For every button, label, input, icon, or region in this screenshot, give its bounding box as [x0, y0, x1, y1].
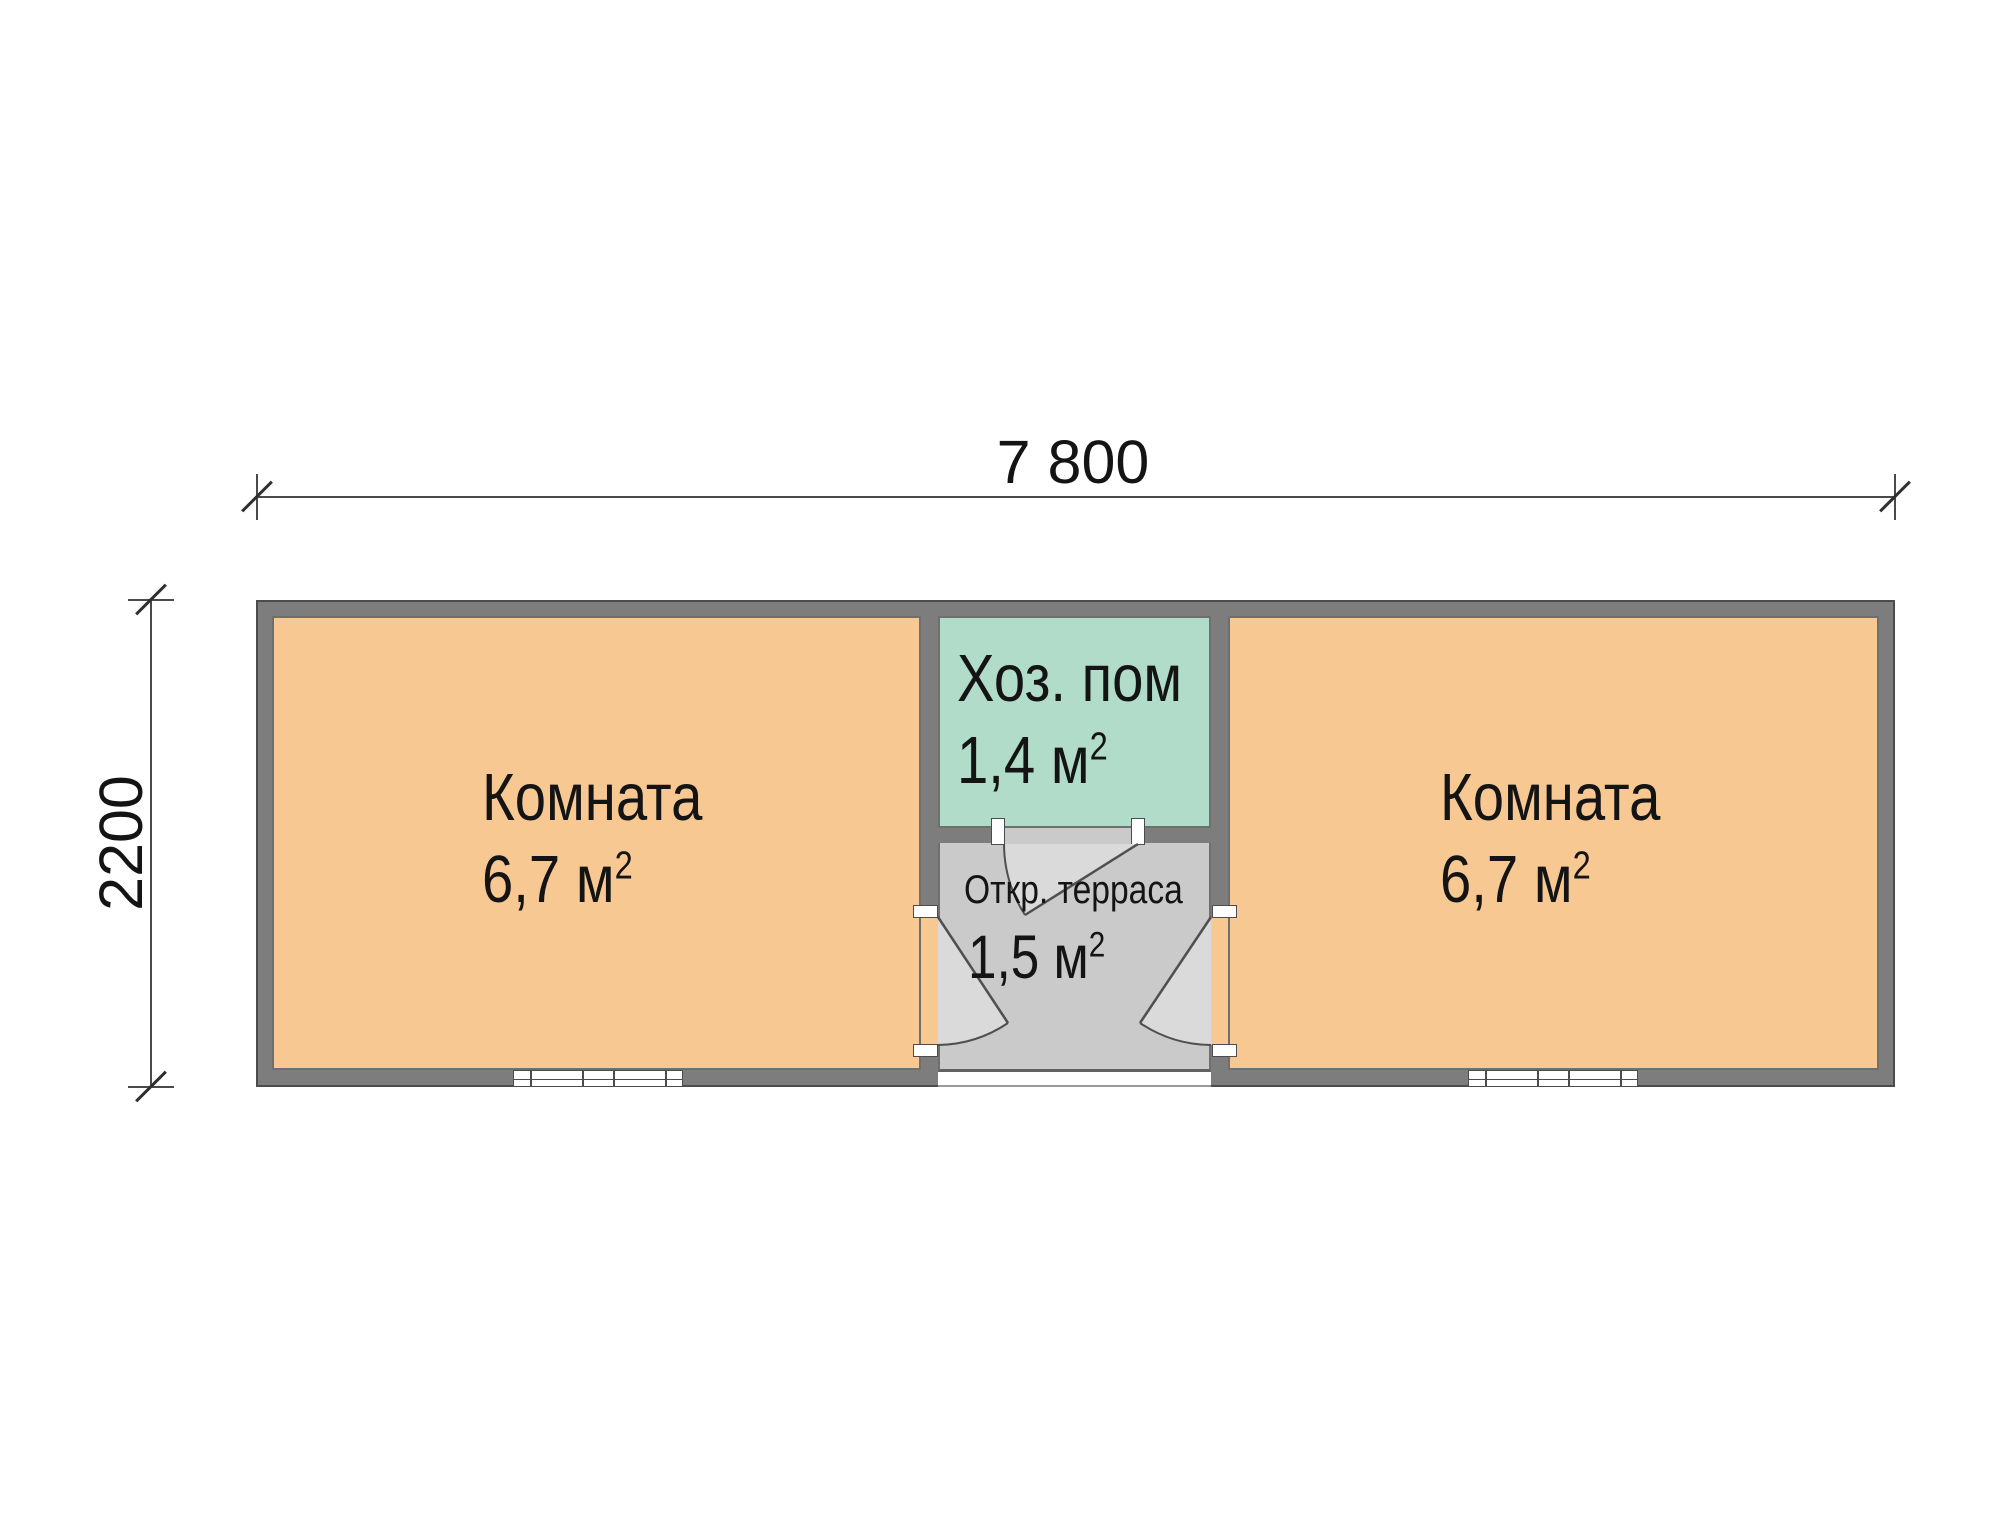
window-glazing-line [1469, 1079, 1637, 1080]
utility-room-area: 1,4 м2 [957, 720, 1182, 802]
terrace-front-opening [938, 1072, 1211, 1087]
terrace-label: Откр. терраса [964, 866, 1183, 914]
height-dimension-label: 2200 [86, 775, 156, 911]
room-right-name: Комната [1440, 757, 1660, 839]
utility-doorway-opening [1005, 828, 1131, 844]
left-room-doorway-opening [921, 917, 938, 1045]
left-door-jamb-top [913, 905, 938, 918]
room-left-area: 6,7 м2 [482, 839, 702, 921]
room-right-label: Комната 6,7 м2 [1440, 757, 1660, 921]
right-room-doorway-opening [1211, 917, 1228, 1045]
utility-room-name: Хоз. пом [957, 638, 1182, 720]
window-right [1468, 1070, 1638, 1087]
room-right-area: 6,7 м2 [1440, 839, 1660, 921]
utility-door-jamb-left [991, 818, 1005, 845]
utility-room-label: Хоз. пом 1,4 м2 [957, 638, 1182, 802]
window-left [513, 1070, 683, 1087]
width-dimension-label: 7 800 [997, 427, 1150, 497]
window-glazing-line [514, 1079, 682, 1080]
right-door-jamb-top [1212, 905, 1237, 918]
room-left-name: Комната [482, 757, 702, 839]
left-door-jamb-bottom [913, 1044, 938, 1057]
right-door-jamb-bottom [1212, 1044, 1237, 1057]
terrace-area: 1,5 м2 [968, 921, 1105, 993]
utility-door-jamb-right [1131, 818, 1145, 845]
room-left-label: Комната 6,7 м2 [482, 757, 702, 921]
floor-plan-canvas: 7 800 2200 [0, 0, 2000, 1538]
